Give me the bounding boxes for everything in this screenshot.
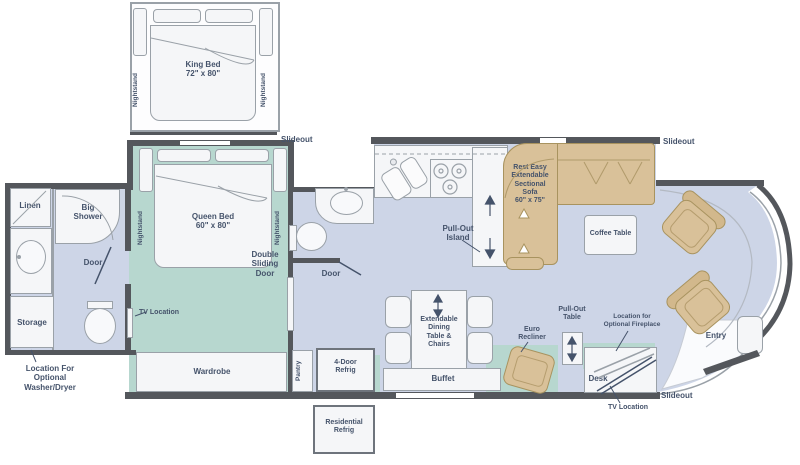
midbath-sink — [330, 191, 363, 215]
sectional-sofa-label: Rest Easy Extendable Sectional Sofa 60" … — [498, 164, 562, 205]
pantry-label: Pantry — [295, 353, 310, 389]
sectional-sofa-footrest — [506, 257, 544, 270]
bedroom-tv-label: TV Location — [139, 309, 189, 317]
bedroom-slideout-right-wall — [288, 140, 294, 190]
rear-toilet — [84, 308, 116, 344]
king-nightstand-right — [259, 8, 273, 56]
queen-pillow-right — [215, 149, 269, 162]
cooktop — [430, 159, 473, 198]
pull-out-table — [562, 332, 583, 365]
four-door-refrig-label: 4-Door Refrig — [318, 359, 373, 376]
queen-pillow-left — [157, 149, 211, 162]
desk-tv-label: TV Location — [598, 404, 658, 412]
storage-label: Storage — [12, 318, 52, 327]
floorplan-canvas: Nightstand Nightstand King Bed 72" x 80"… — [0, 0, 800, 465]
washer-dryer-label: Location For Optional Washer/Dryer — [0, 364, 100, 392]
king-bed-label: King Bed 72" x 80" — [167, 60, 239, 79]
cab-top-wall — [656, 180, 764, 186]
rear-bath-door-label: Door — [76, 258, 110, 267]
desk-label: Desk — [580, 374, 616, 383]
pull-out-island-label: Pull-Out Island — [432, 224, 484, 243]
bath-bedroom-divider-upper — [125, 189, 131, 251]
king-nightstand-left-label: Nightstand — [132, 58, 146, 122]
slideout-label-bedroom: Slideout — [281, 135, 331, 144]
bedroom-tv — [127, 308, 133, 338]
queen-nightstand-left — [139, 148, 153, 192]
pull-out-table-label: Pull-Out Table — [548, 306, 596, 323]
entry-label: Entry — [694, 331, 738, 340]
dining-chair-3 — [467, 296, 493, 328]
bedroom-window — [180, 141, 230, 145]
queen-nightstand-right — [273, 148, 287, 192]
midbath-bottom-wall — [293, 258, 340, 263]
linen-label: Linen — [12, 201, 48, 210]
buffet-label: Buffet — [408, 374, 478, 383]
wardrobe-label: Wardrobe — [177, 367, 247, 376]
sliding-door-panel — [287, 277, 294, 331]
midbath-door-label: Door — [314, 269, 348, 278]
slideout-label-living: Slideout — [663, 137, 713, 146]
dining-chair-1 — [385, 296, 411, 328]
bath-sink — [16, 240, 46, 274]
dining-chair-2 — [385, 332, 411, 364]
king-nightstand-left — [133, 8, 147, 56]
bath-bottom-wall — [5, 350, 136, 355]
dining-label: Extendable Dining Table & Chairs — [413, 316, 465, 349]
bottom-window — [396, 393, 474, 398]
coffee-table-label: Coffee Table — [585, 230, 636, 238]
euro-recliner-label: Euro Recliner — [506, 326, 558, 343]
king-nightstand-right-label: Nightstand — [260, 58, 274, 122]
fireplace-label: Location for Optional Fireplace — [592, 313, 672, 328]
double-sliding-door-label: Double Sliding Door — [242, 250, 288, 278]
slideout-label-desk: Slideout — [661, 391, 711, 400]
entry-step — [737, 316, 763, 354]
queen-nightstand-left-label: Nightstand — [137, 196, 151, 260]
midbath-toilet — [296, 222, 327, 251]
dining-chair-4 — [467, 332, 493, 364]
big-shower-label: Big Shower — [60, 203, 116, 222]
desk — [584, 347, 657, 393]
bottom-wall — [125, 392, 660, 399]
queen-bed-label: Queen Bed 60" x 80" — [175, 212, 251, 231]
king-pillow-left — [153, 9, 201, 23]
residential-refrig-label: Residential Refrig — [315, 419, 373, 436]
king-pillow-right — [205, 9, 253, 23]
